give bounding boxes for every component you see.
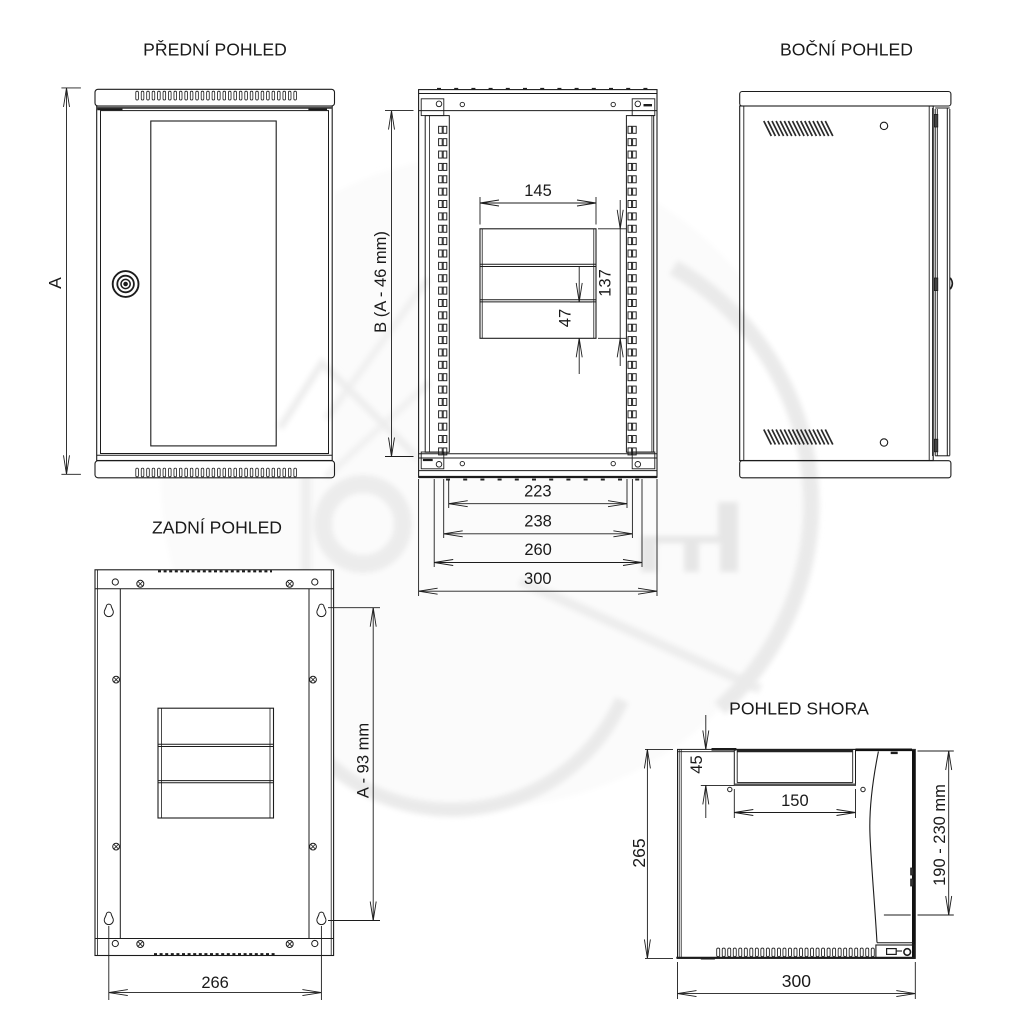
svg-text:B (A - 46 mm): B (A - 46 mm): [372, 231, 390, 333]
svg-text:300: 300: [524, 570, 552, 588]
svg-text:260: 260: [524, 541, 552, 559]
svg-text:266: 266: [201, 974, 229, 992]
svg-text:POHLED SHORA: POHLED SHORA: [729, 699, 869, 719]
svg-text:A - 93 mm: A - 93 mm: [355, 723, 373, 798]
svg-text:145: 145: [524, 182, 552, 200]
svg-text:A: A: [45, 277, 65, 289]
svg-text:137: 137: [597, 269, 615, 297]
svg-text:47: 47: [557, 309, 575, 327]
svg-text:45: 45: [688, 755, 706, 773]
svg-text:150: 150: [781, 792, 809, 810]
svg-text:238: 238: [524, 513, 552, 531]
svg-text:265: 265: [629, 838, 649, 867]
svg-text:BOČNÍ POHLED: BOČNÍ POHLED: [780, 39, 913, 60]
svg-text:190 - 230 mm: 190 - 230 mm: [931, 784, 949, 886]
svg-text:223: 223: [524, 483, 552, 501]
svg-text:PŘEDNÍ POHLED: PŘEDNÍ POHLED: [143, 40, 287, 60]
svg-text:ZADNÍ POHLED: ZADNÍ POHLED: [152, 518, 282, 538]
svg-text:300: 300: [782, 971, 811, 991]
